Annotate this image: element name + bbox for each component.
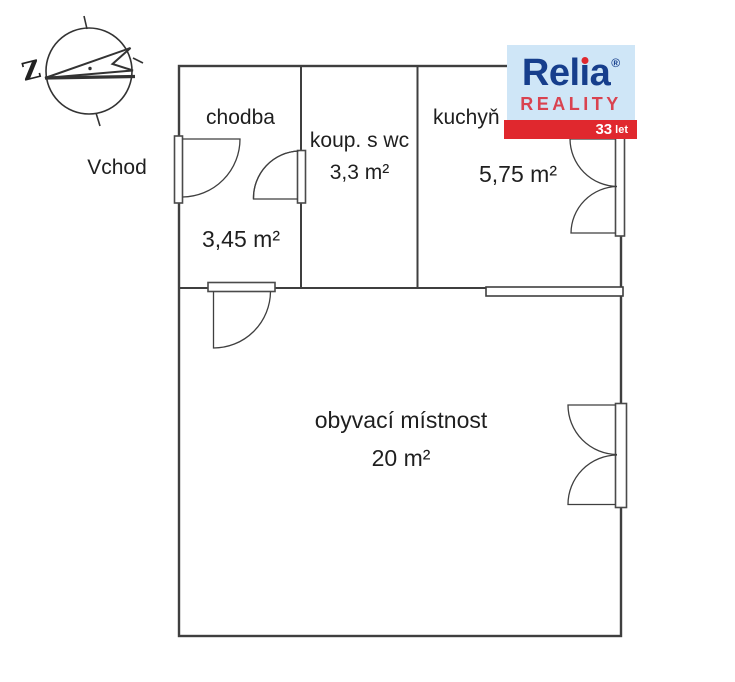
room-area-kuchyn: 5,75 m²: [458, 163, 578, 186]
relia-subtitle: REALITY: [520, 95, 622, 113]
relia-logo: Relıa® REALITY 33 let: [507, 45, 635, 139]
entrance-door-swing: [183, 139, 241, 197]
room-area-chodba: 3,45 m²: [179, 228, 303, 251]
brand-text-pre: Rel: [522, 52, 580, 94]
bathroom-door-arc: [253, 151, 298, 199]
room-label-koupelna: koup. s wc: [303, 130, 416, 151]
brand-letter-i: ı: [580, 54, 590, 92]
livingroom-window-bottom-swing: [568, 455, 617, 505]
kitchen-window-frame: [616, 135, 625, 236]
room-label-kuchyn: kuchyň: [433, 107, 500, 128]
livingroom-window-top-swing: [568, 405, 617, 455]
relia-anniversary-bar: 33 let: [504, 120, 637, 139]
compass-tick-bottom: [96, 113, 100, 126]
wall-segment-kitchen-living: [486, 287, 623, 296]
floor-plan-page: { "logo": { "brand": "Relia", "brand_pre…: [0, 0, 735, 682]
compass-tick-right: [133, 58, 143, 63]
relia-logo-box: Relıa® REALITY: [507, 45, 635, 120]
livingroom-window-frame: [616, 404, 627, 508]
anniversary-unit: let: [615, 125, 628, 136]
brand-text-post: a: [590, 52, 611, 94]
compass-arrow: [45, 48, 133, 78]
relia-brand-wordmark: Relıa®: [522, 54, 620, 92]
compass-center-dot: [88, 67, 91, 70]
brand-i-red-dot: [581, 57, 588, 64]
compass-tick-top: [84, 16, 87, 29]
livingroom-door-swing: [214, 292, 271, 349]
livingroom-door-frame: [208, 283, 275, 292]
room-area-obyvaci-mistnost: 20 m²: [281, 447, 521, 470]
entrance-label: Vchod: [57, 157, 177, 178]
registered-trademark-icon: ®: [611, 56, 620, 70]
room-label-obyvaci-mistnost: obyvací místnost: [281, 409, 521, 432]
anniversary-number: 33: [595, 122, 612, 137]
compass-rose-icon: [45, 16, 143, 126]
room-area-koupelna: 3,3 m²: [303, 162, 416, 183]
kitchen-window-bottom-swing: [571, 187, 617, 234]
room-label-chodba: chodba: [179, 107, 302, 128]
